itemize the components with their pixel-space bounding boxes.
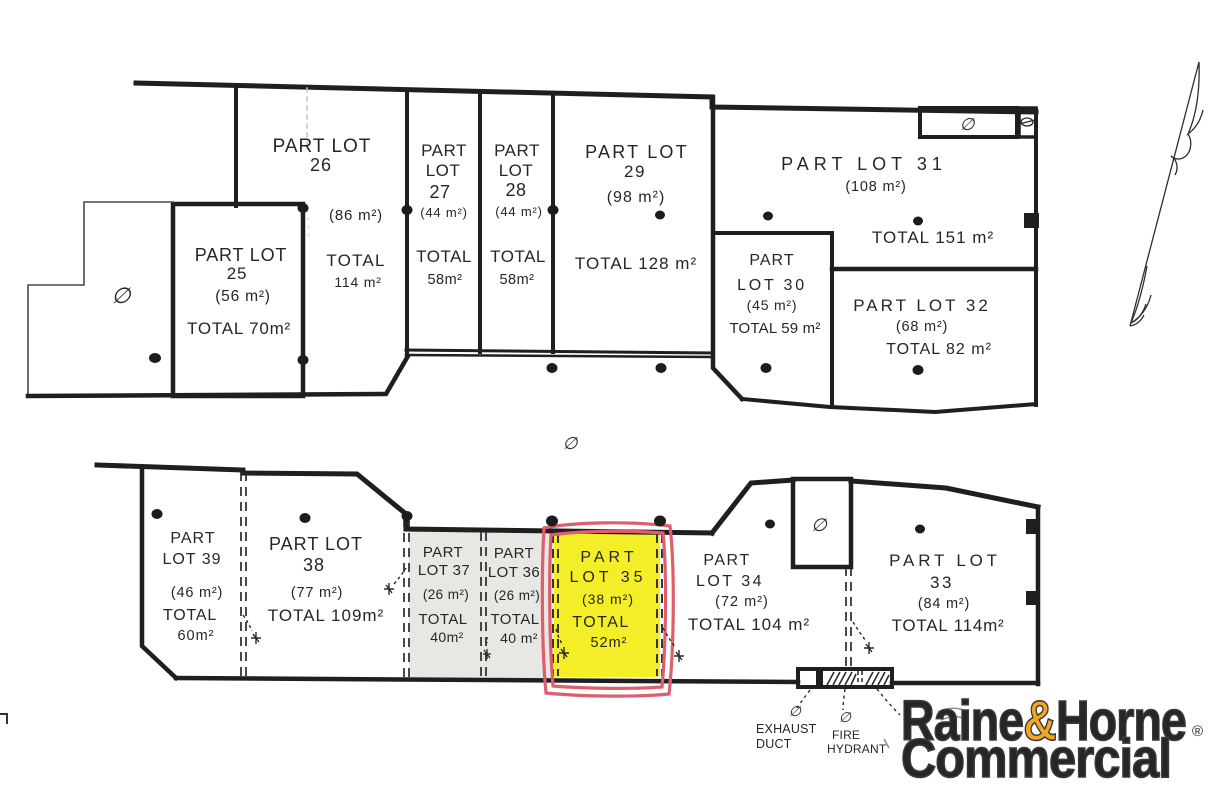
svg-text:FIRE: FIRE [832, 728, 860, 742]
svg-text:TOTAL: TOTAL [572, 614, 630, 631]
svg-text:(86 m²): (86 m²) [329, 207, 383, 224]
svg-text:29: 29 [624, 162, 646, 181]
svg-text:TOTAL: TOTAL [419, 611, 468, 628]
svg-text:∅: ∅ [839, 709, 852, 725]
svg-text:(77 m²): (77 m²) [291, 585, 343, 601]
svg-text:TOTAL 70m²: TOTAL 70m² [187, 319, 291, 338]
svg-text:114 m²: 114 m² [334, 274, 381, 290]
svg-text:EXHAUST: EXHAUST [756, 722, 817, 736]
svg-text:(44 m²): (44 m²) [495, 204, 543, 219]
svg-text:(38 m²): (38 m²) [582, 591, 634, 607]
svg-text:(46 m²): (46 m²) [171, 585, 223, 601]
svg-text:PART: PART [421, 141, 467, 160]
svg-text:52m²: 52m² [590, 635, 627, 651]
svg-text:LOT 34: LOT 34 [696, 573, 764, 590]
svg-text:28: 28 [505, 180, 526, 200]
svg-text:PART LOT: PART LOT [585, 142, 689, 162]
svg-text:PART: PART [494, 141, 540, 160]
svg-text:PART LOT: PART LOT [269, 534, 363, 554]
svg-text:PART: PART [749, 252, 794, 269]
svg-text:40m²: 40m² [430, 629, 464, 645]
svg-text:∅: ∅ [563, 434, 579, 453]
svg-text:PART: PART [580, 549, 637, 566]
svg-text:TOTAL: TOTAL [326, 251, 385, 270]
svg-text:PART LOT 32: PART LOT 32 [853, 296, 991, 315]
svg-text:®: ® [1192, 723, 1203, 740]
svg-text:PART LOT 31: PART LOT 31 [781, 154, 947, 174]
svg-text:60m²: 60m² [177, 628, 214, 644]
svg-text:(44 m²): (44 m²) [420, 205, 468, 220]
svg-text:TOTAL 109m²: TOTAL 109m² [268, 606, 385, 625]
svg-text:(68 m²): (68 m²) [896, 319, 948, 335]
svg-text:LOT 39: LOT 39 [162, 551, 221, 568]
svg-text:LOT 30: LOT 30 [737, 277, 807, 294]
svg-text:25: 25 [227, 264, 248, 283]
svg-text:58m²: 58m² [427, 272, 462, 288]
svg-text:PART LOT: PART LOT [195, 245, 287, 265]
svg-text:33: 33 [930, 573, 954, 592]
svg-text:PART LOT: PART LOT [889, 551, 1001, 570]
svg-text:27: 27 [429, 182, 450, 202]
svg-text:(26 m²): (26 m²) [494, 588, 540, 603]
svg-text:(56 m²): (56 m²) [215, 288, 271, 305]
svg-text:∅: ∅ [789, 703, 802, 719]
svg-text:TOTAL: TOTAL [416, 247, 472, 266]
svg-text:∅: ∅ [111, 283, 131, 308]
svg-text:PART: PART [423, 544, 463, 561]
svg-text:PART: PART [494, 545, 534, 562]
svg-text:58m²: 58m² [499, 272, 534, 288]
svg-text:LOT: LOT [499, 161, 534, 180]
svg-text:TOTAL 82 m²: TOTAL 82 m² [886, 341, 992, 358]
svg-text:TOTAL 114m²: TOTAL 114m² [891, 616, 1004, 635]
svg-text:(45 m²): (45 m²) [747, 297, 798, 313]
svg-text:TOTAL: TOTAL [491, 611, 540, 628]
svg-text:(98 m²): (98 m²) [607, 189, 666, 206]
svg-text:TOTAL 151 m²: TOTAL 151 m² [872, 228, 994, 247]
svg-text:PART: PART [703, 552, 750, 569]
svg-text:TOTAL 59 m²: TOTAL 59 m² [729, 320, 820, 337]
svg-text:LOT 35: LOT 35 [569, 569, 646, 586]
svg-text:Commercial: Commercial [901, 727, 1171, 789]
svg-text:(84 m²): (84 m²) [918, 596, 970, 612]
svg-text:LOT: LOT [426, 161, 461, 180]
svg-text:26: 26 [310, 155, 332, 175]
svg-text:38: 38 [303, 555, 325, 575]
svg-text:∅: ∅ [811, 515, 828, 535]
svg-text:TOTAL: TOTAL [490, 247, 546, 266]
svg-text:TOTAL: TOTAL [163, 607, 217, 624]
svg-text:LOT 36: LOT 36 [488, 564, 540, 581]
svg-text:DUCT: DUCT [756, 737, 792, 751]
svg-text:TOTAL 104 m²: TOTAL 104 m² [688, 615, 810, 634]
svg-text:LOT 37: LOT 37 [418, 562, 470, 579]
svg-text:PART LOT: PART LOT [273, 136, 372, 157]
svg-text:(108 m²): (108 m²) [845, 179, 906, 195]
svg-text:TOTAL 128 m²: TOTAL 128 m² [575, 254, 697, 273]
svg-text:(72 m²): (72 m²) [715, 594, 769, 610]
svg-text:PART: PART [170, 530, 215, 547]
svg-text:∅: ∅ [960, 115, 976, 134]
svg-text:HYDRANT: HYDRANT [827, 742, 887, 756]
svg-text:(26 m²): (26 m²) [423, 587, 469, 602]
svg-text:40 m²: 40 m² [500, 630, 538, 646]
